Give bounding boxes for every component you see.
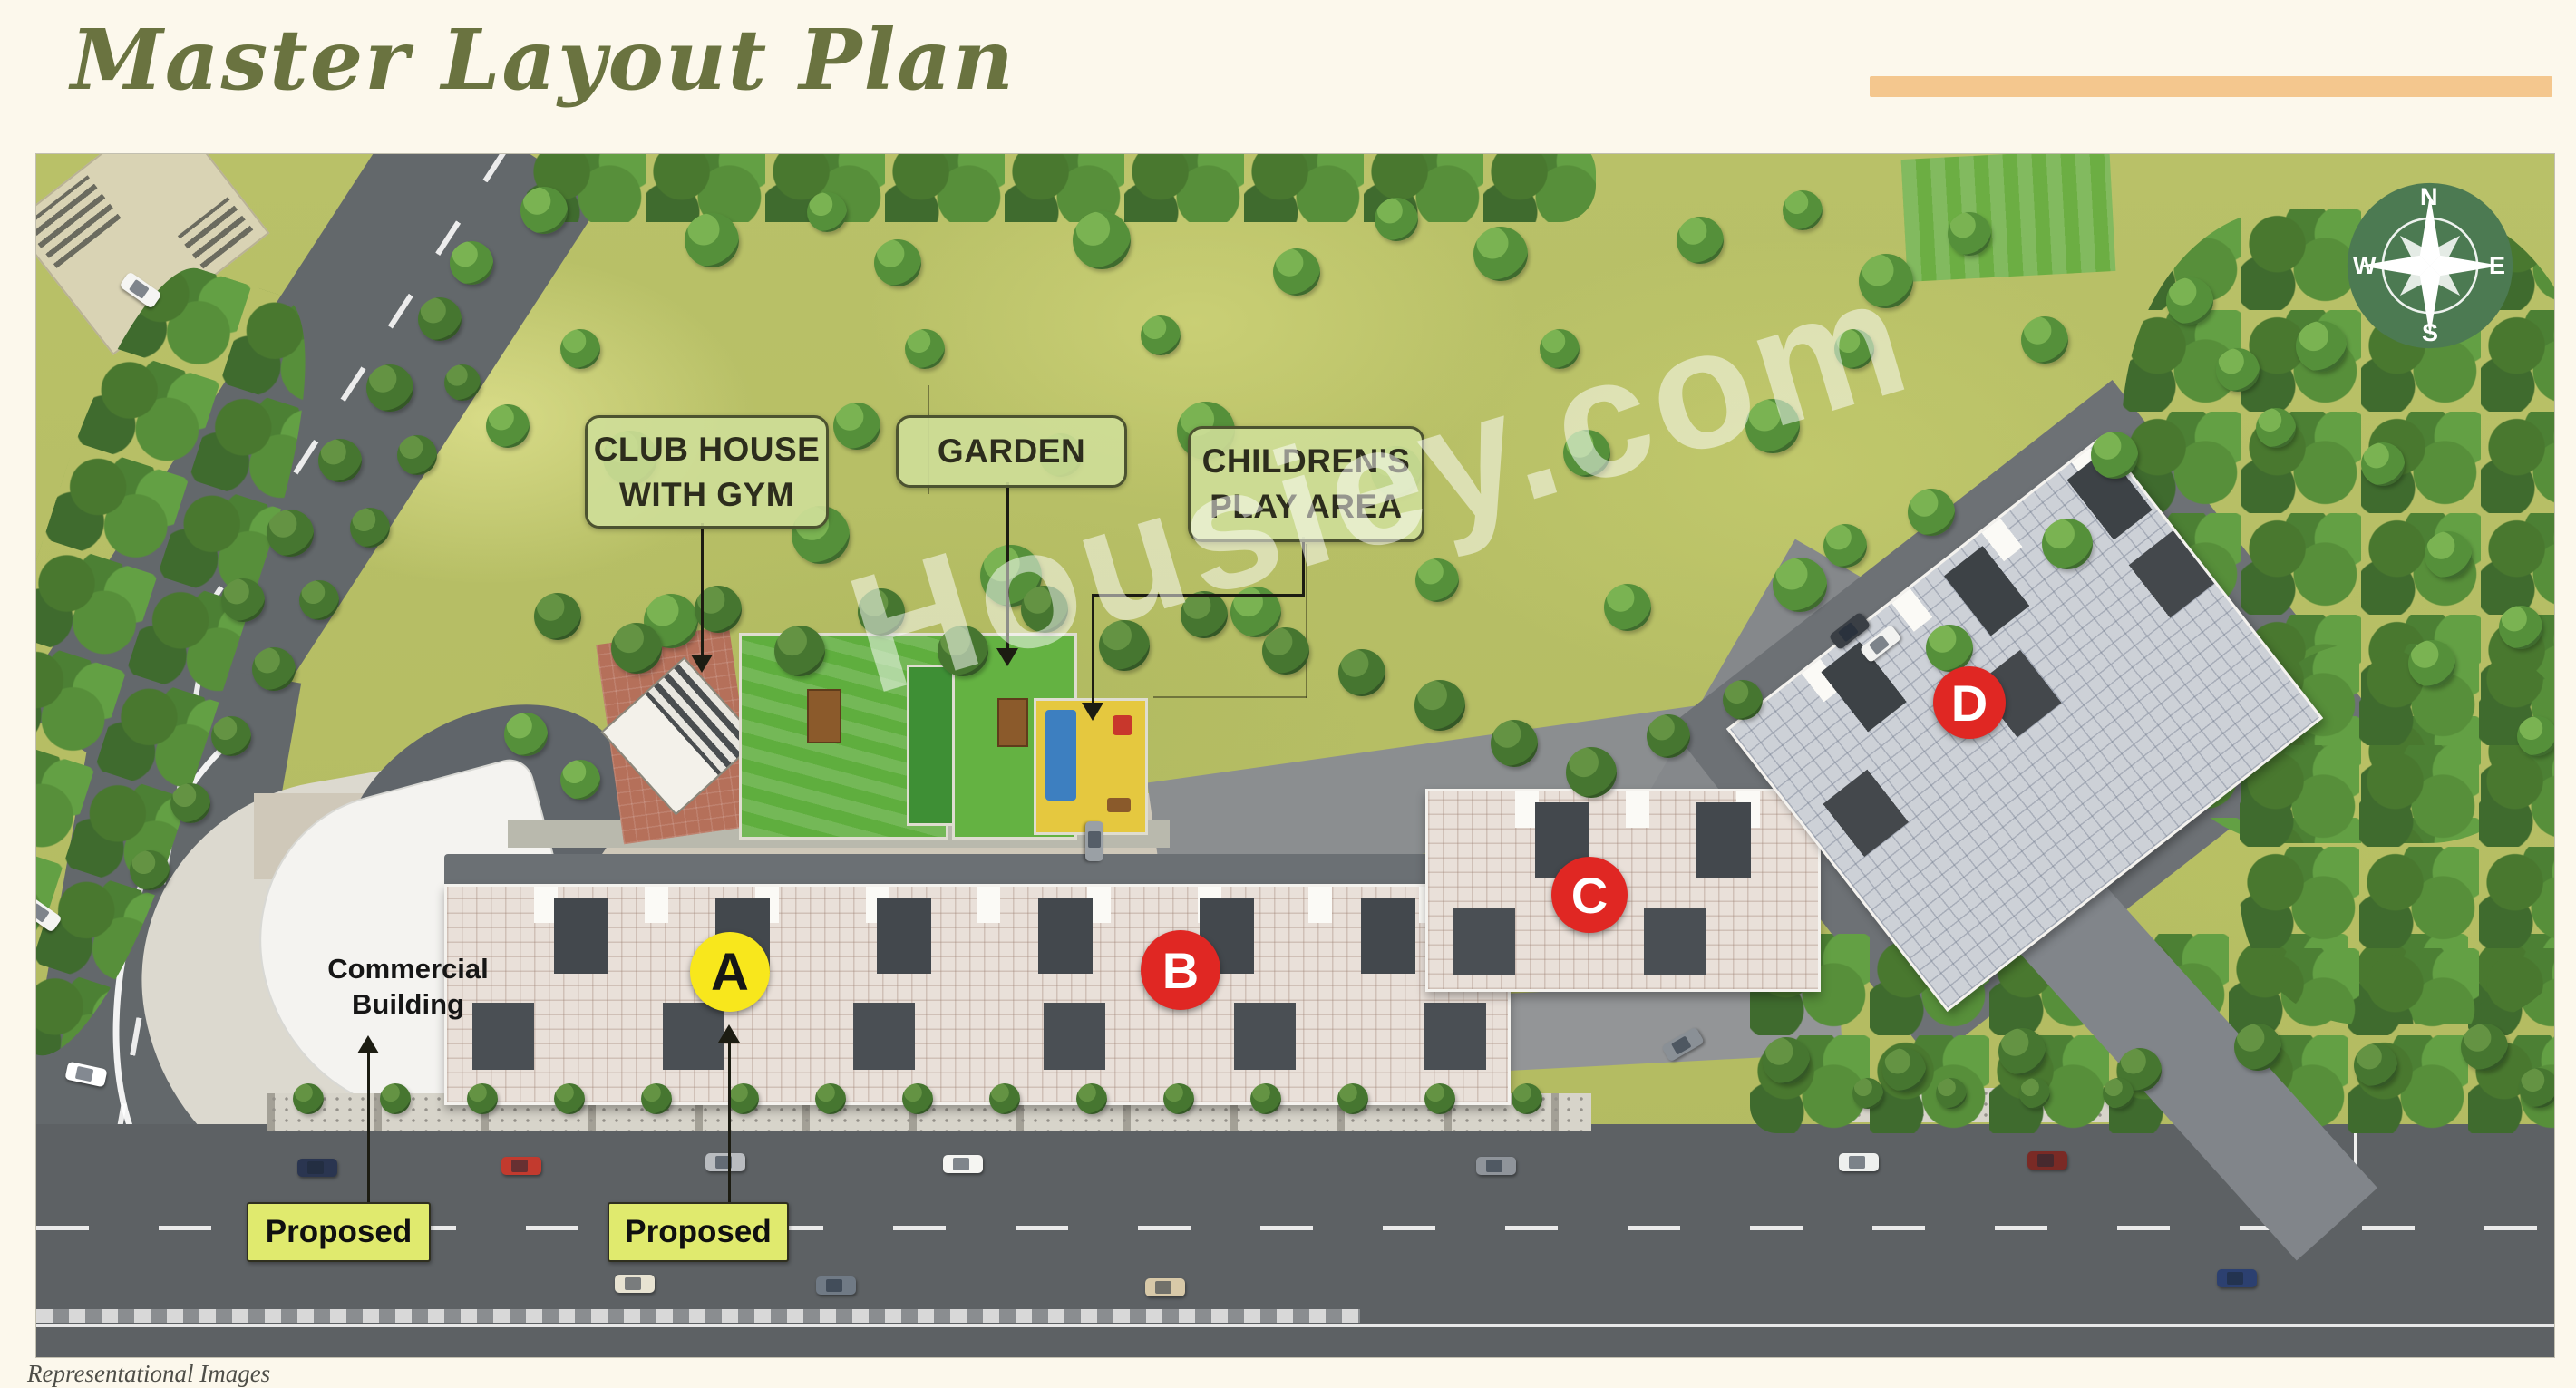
car [1476,1157,1516,1175]
tree [1677,217,1724,264]
tree [1773,558,1827,612]
tree [170,783,210,823]
tree [267,510,314,557]
car [943,1155,983,1173]
building-marker-d-letter: D [1951,674,1988,733]
building-marker-a-letter: A [711,942,749,1003]
tree [1948,212,1991,256]
footer-note: Representational Images [27,1360,270,1388]
tree [444,364,481,401]
tree [1908,489,1955,536]
tree [221,578,265,622]
compass-east-label: E [2489,252,2505,280]
building-marker-a: A [690,932,770,1012]
commercial-label-line1: Commercial [299,952,517,987]
car [297,1159,337,1177]
leader-children-arrow [1082,703,1103,732]
tree [554,1083,585,1114]
car [36,895,63,933]
tree [2042,519,2093,569]
tree [366,364,413,412]
tree [2019,1078,2050,1109]
tree [2361,442,2405,486]
building-marker-b-letter: B [1162,941,1199,1000]
tree [1473,227,1528,281]
site-plan-map: CLUB HOUSE WITH GYM GARDEN CHILDREN'S PL… [36,154,2554,1357]
tree [397,435,437,475]
car [2217,1269,2257,1287]
tree [318,439,362,482]
commercial-building-label: Commercial Building [299,952,517,1023]
car [64,1062,107,1088]
tree [1250,1083,1281,1114]
tree [1512,1083,1542,1114]
tree [1338,649,1385,696]
page-title: Master Layout Plan [71,11,1016,109]
tree [1163,1083,1194,1114]
proposed-left-text: Proposed [266,1214,412,1250]
compass-south-label: S [2422,319,2438,347]
leader-club-house [701,523,704,659]
tree [418,297,462,341]
building-marker-c-letter: C [1571,866,1608,925]
tree [1076,1083,1107,1114]
tree [728,1083,759,1114]
leader-club-house-arrow [691,655,713,684]
tree [1852,1078,1883,1109]
tree [1783,190,1823,230]
tree [874,239,921,286]
building-marker-d: D [1933,666,2006,739]
tree [534,593,581,640]
tree [815,1083,846,1114]
tree [833,403,880,450]
tree [1375,198,1418,241]
tree [1566,747,1617,798]
tree [560,329,600,369]
tree [2091,432,2138,479]
accent-bar [1870,76,2552,97]
tree [2256,408,2296,448]
car [1085,821,1103,861]
car [615,1275,655,1293]
tree [211,716,251,756]
tree [1414,680,1465,731]
tree [2408,640,2455,687]
decor-layer [36,154,2554,1357]
master-layout-plan-page: { "page": { "title": "Master Layout Plan… [0,0,2576,1386]
car [705,1153,745,1171]
car [119,271,162,309]
tree [293,1083,324,1114]
tree [467,1083,498,1114]
tree [252,647,296,691]
label-club-house-line2: WITH GYM [619,472,794,518]
tree [1882,1048,1926,1092]
tree [1647,714,1690,758]
car [501,1157,541,1175]
tree [2354,1043,2397,1087]
tree [2296,321,2347,372]
tree [774,626,825,676]
tree [380,1083,411,1114]
proposed-label-left: Proposed [247,1202,431,1262]
tree [641,1083,672,1114]
tree [2103,1078,2134,1109]
car [1661,1026,1705,1062]
tree [611,623,662,674]
tree [520,187,568,234]
tree [2166,277,2213,325]
tree [486,404,530,448]
tree [504,713,548,756]
marker-a-leader [728,1030,731,1202]
tree [130,850,170,890]
tree [685,213,739,267]
building-marker-b: B [1141,930,1220,1010]
car [1145,1278,1185,1296]
tree [1604,584,1651,631]
tree [1926,625,1973,672]
tree [1763,1037,1810,1084]
label-club-house-line1: CLUB HOUSE [594,427,821,472]
compass-west-label: W [2353,252,2376,280]
tree [905,329,945,369]
tree [1723,680,1763,720]
tree [1262,627,1309,675]
tree [1141,315,1181,355]
tree [1491,720,1538,767]
proposed-label-right: Proposed [608,1202,789,1262]
tree [299,580,339,620]
commercial-leader [367,1041,370,1202]
tree [2216,348,2260,392]
proposed-right-text: Proposed [625,1214,771,1250]
commercial-label-line2: Building [299,987,517,1023]
tree [1998,1028,2046,1075]
tree [1273,248,1320,296]
tree [2234,1024,2281,1071]
car [816,1276,856,1295]
label-club-house: CLUB HOUSE WITH GYM [585,415,829,529]
compass-rose: N E S W [2346,181,2514,350]
tree [1936,1078,1967,1109]
compass-north-label: N [2420,183,2438,211]
tree [2461,1024,2508,1071]
tree [2499,606,2542,649]
tree [1337,1083,1368,1114]
tree [1424,1083,1455,1114]
building-marker-c: C [1551,857,1628,933]
tree [2425,531,2472,578]
tree [1823,524,1867,568]
label-garden-line1: GARDEN [938,429,1085,474]
tree [560,760,600,800]
car [1860,625,1902,664]
tree [1073,211,1131,269]
tree [2519,1068,2554,1108]
tree [807,192,847,232]
tree [2021,316,2068,364]
tree [450,241,493,285]
car [2027,1151,2067,1170]
car [1839,1153,1879,1171]
tree [2517,716,2554,756]
tree [989,1083,1020,1114]
tree [350,508,390,548]
tree [902,1083,933,1114]
